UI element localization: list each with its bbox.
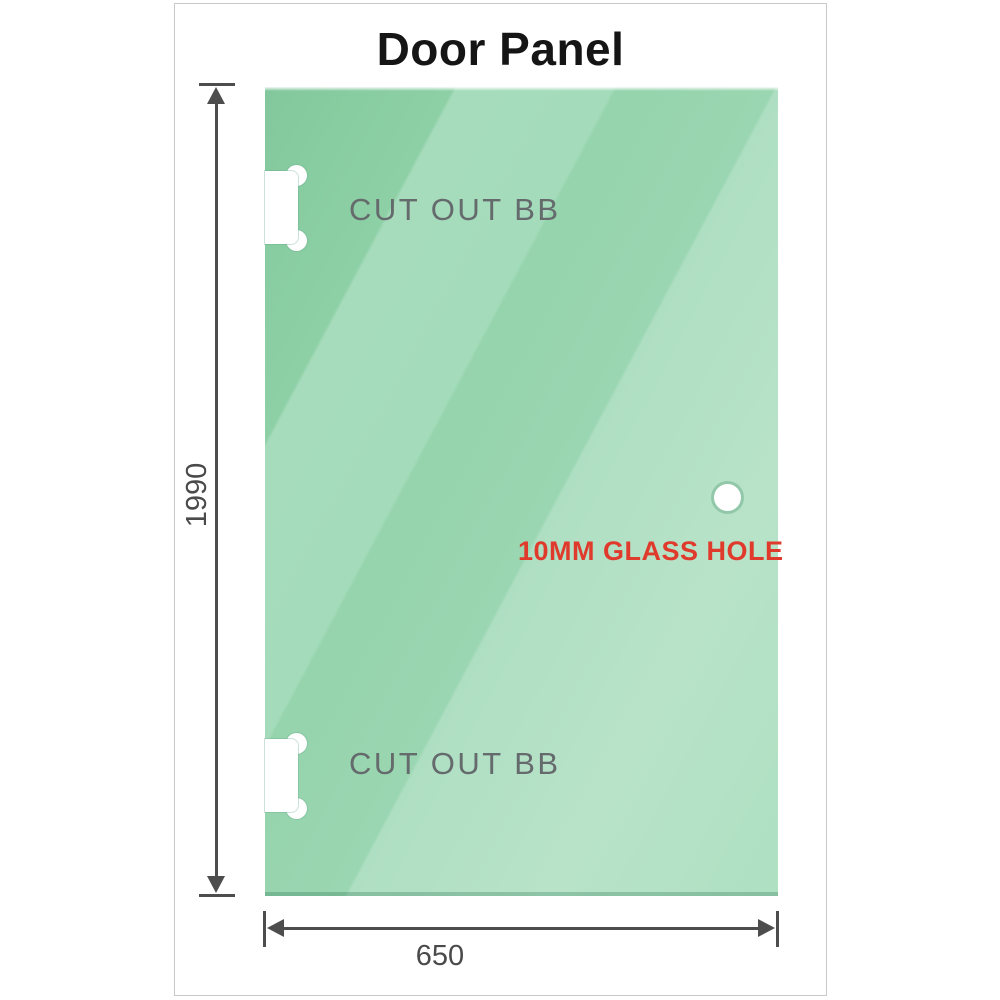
height-dim-arrow-down-icon bbox=[207, 876, 225, 893]
hinge-cutout-top bbox=[265, 165, 309, 251]
glass-hole-label: 10MM GLASS HOLE bbox=[518, 536, 784, 567]
width-dim-tick-left bbox=[263, 911, 266, 947]
hinge-cutout-bottom bbox=[265, 733, 309, 819]
width-dim-arrow-right-icon bbox=[758, 919, 775, 937]
diagram-canvas: Door Panel CUT OUT BB CUT OUT BB 10MM GL… bbox=[0, 0, 1000, 1000]
height-dim-arrow-up-icon bbox=[207, 87, 225, 104]
height-dim-value: 1990 bbox=[181, 435, 211, 555]
diagram-title: Door Panel bbox=[174, 22, 827, 76]
width-dim-tick-right bbox=[776, 911, 779, 947]
height-dim-tick-top bbox=[199, 83, 235, 86]
height-dim-tick-bottom bbox=[199, 894, 235, 897]
cutout-top-label: CUT OUT BB bbox=[349, 192, 561, 228]
width-dim-value: 650 bbox=[400, 940, 480, 973]
cutout-top-fill bbox=[265, 173, 296, 242]
glass-hole bbox=[714, 484, 741, 511]
height-dim-line bbox=[215, 97, 218, 883]
width-dim-arrow-left-icon bbox=[267, 919, 284, 937]
width-dim-line bbox=[276, 927, 766, 930]
cutout-bottom-label: CUT OUT BB bbox=[349, 746, 561, 782]
cutout-bottom-fill bbox=[265, 741, 296, 810]
